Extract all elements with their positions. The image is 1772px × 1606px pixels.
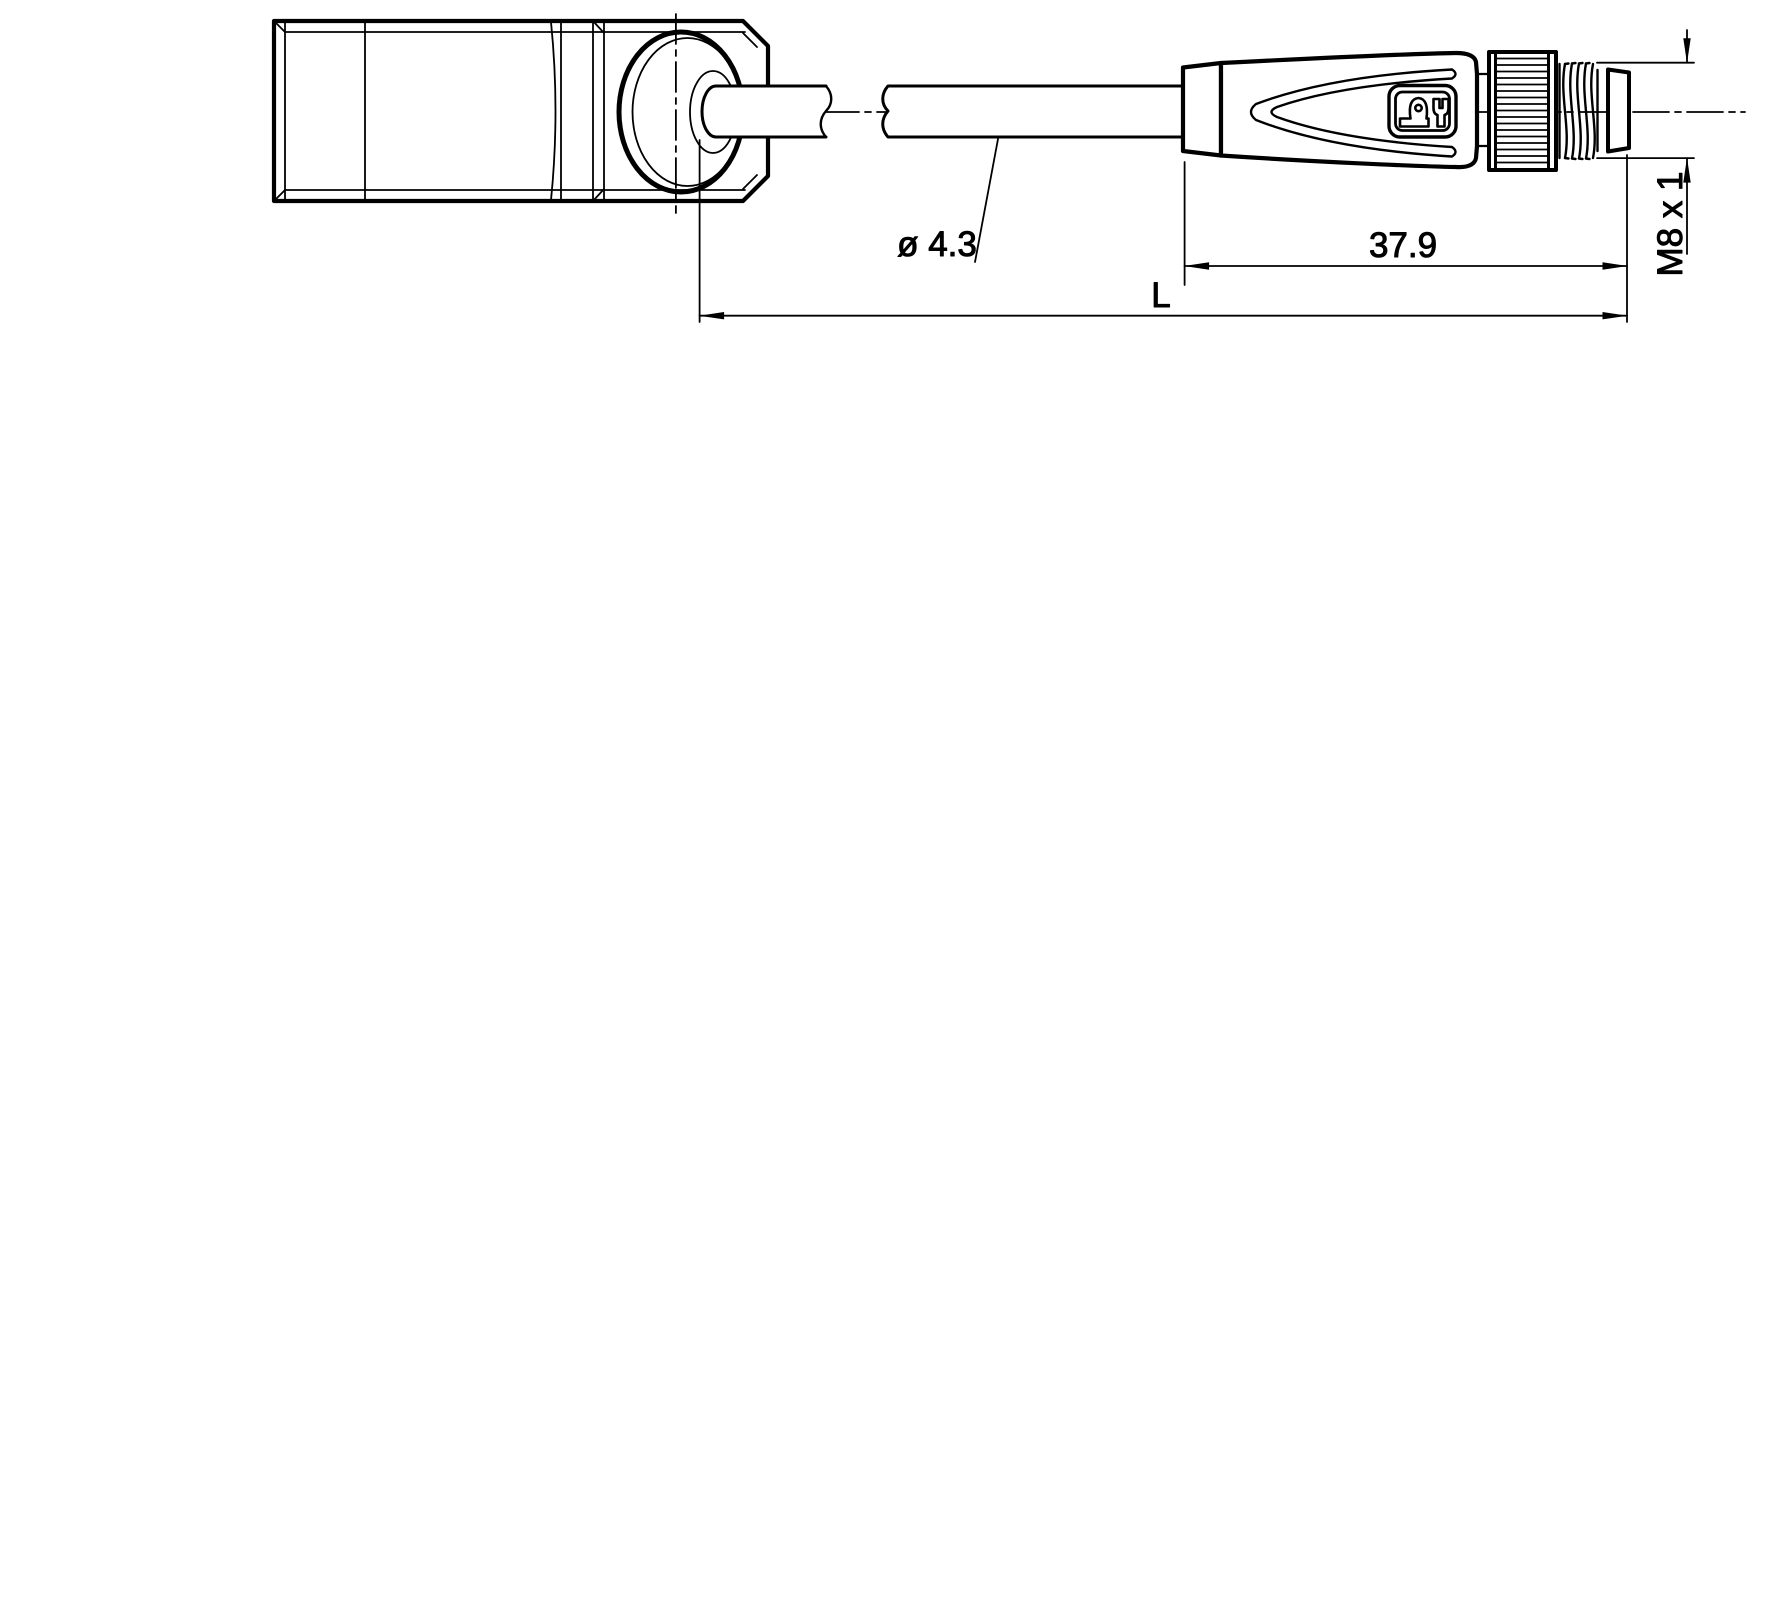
svg-text:ø 4.3: ø 4.3 (897, 225, 977, 264)
svg-text:L: L (1151, 276, 1170, 315)
svg-text:M8 x 1: M8 x 1 (1651, 171, 1690, 276)
svg-text:37.9: 37.9 (1369, 226, 1437, 265)
